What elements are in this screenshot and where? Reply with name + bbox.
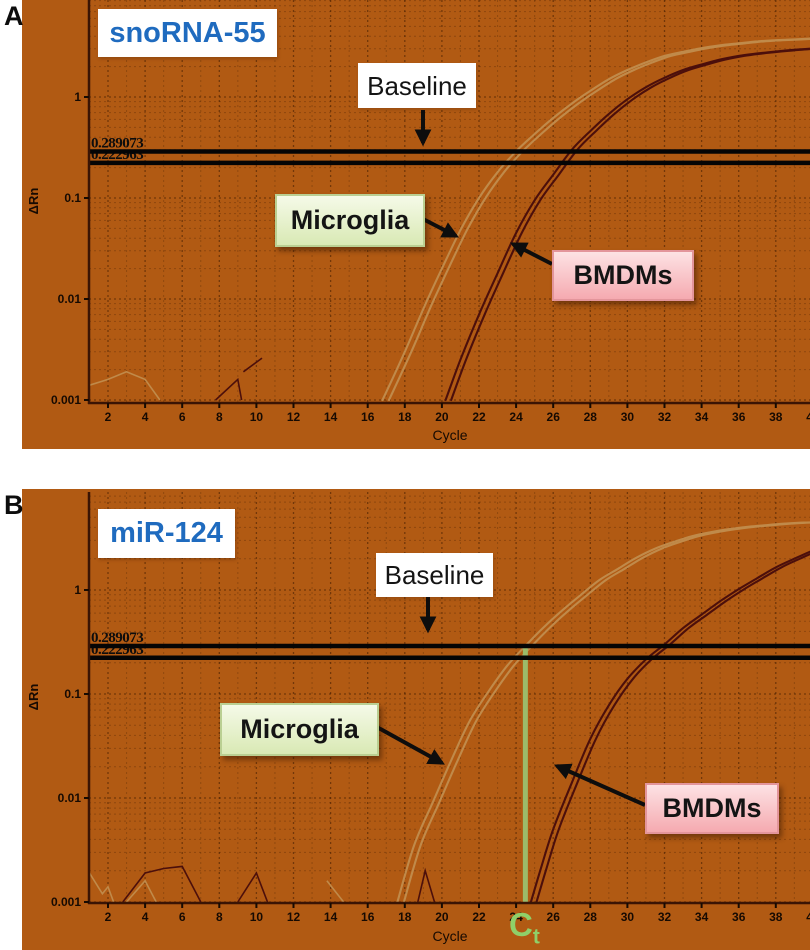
ct-threshold-cycle-label: Ct [509, 906, 540, 944]
svg-text:0.001: 0.001 [51, 393, 81, 407]
svg-text:16: 16 [361, 910, 375, 924]
svg-text:8: 8 [216, 910, 223, 924]
ct-label-sub: t [533, 926, 540, 949]
bmdms-label-b: BMDMs [645, 783, 779, 834]
bmdms-label-a: BMDMs [552, 250, 694, 301]
svg-text:1: 1 [74, 583, 81, 597]
svg-text:0.1: 0.1 [64, 191, 81, 205]
svg-text:24: 24 [509, 410, 523, 424]
svg-text:0.1: 0.1 [64, 687, 81, 701]
svg-text:34: 34 [695, 410, 709, 424]
svg-text:6: 6 [179, 910, 186, 924]
svg-text:38: 38 [769, 410, 783, 424]
svg-text:4: 4 [142, 410, 149, 424]
svg-text:26: 26 [547, 910, 561, 924]
svg-text:18: 18 [398, 910, 412, 924]
svg-text:16: 16 [361, 410, 375, 424]
svg-text:20: 20 [435, 910, 449, 924]
svg-text:6: 6 [179, 410, 186, 424]
svg-text:12: 12 [287, 910, 301, 924]
svg-text:28: 28 [584, 910, 598, 924]
svg-text:0.01: 0.01 [58, 292, 82, 306]
svg-text:30: 30 [621, 410, 635, 424]
microglia-label-a: Microglia [275, 194, 425, 247]
svg-text:8: 8 [216, 410, 223, 424]
svg-text:2: 2 [105, 910, 112, 924]
svg-text:ΔRn: ΔRn [26, 684, 41, 711]
svg-text:36: 36 [732, 410, 746, 424]
panel-a-amplification-plot: 0.2890730.222963246810121416182022242628… [22, 0, 810, 449]
svg-text:0.001: 0.001 [51, 895, 81, 909]
baseline-label-a: Baseline [358, 63, 476, 108]
panel-letter-b: B [4, 490, 22, 521]
panel-b-title: miR-124 [98, 509, 235, 558]
svg-text:36: 36 [732, 910, 746, 924]
svg-text:14: 14 [324, 410, 338, 424]
svg-text:18: 18 [398, 410, 412, 424]
svg-text:30: 30 [621, 910, 635, 924]
svg-text:2: 2 [105, 410, 112, 424]
svg-text:32: 32 [658, 410, 672, 424]
svg-text:32: 32 [658, 910, 672, 924]
svg-text:1: 1 [74, 90, 81, 104]
svg-text:4: 4 [142, 910, 149, 924]
svg-text:20: 20 [435, 410, 449, 424]
microglia-label-b: Microglia [220, 703, 379, 756]
svg-text:10: 10 [250, 410, 264, 424]
svg-text:12: 12 [287, 410, 301, 424]
svg-text:28: 28 [584, 410, 598, 424]
panel-a-title: snoRNA-55 [98, 9, 277, 57]
svg-text:Cycle: Cycle [432, 928, 467, 944]
svg-text:26: 26 [547, 410, 561, 424]
baseline-label-b: Baseline [376, 553, 493, 597]
svg-text:22: 22 [472, 410, 486, 424]
svg-text:10: 10 [250, 910, 264, 924]
panel-letter-a: A [4, 1, 22, 32]
svg-text:40: 40 [806, 910, 810, 924]
svg-text:22: 22 [472, 910, 486, 924]
svg-text:ΔRn: ΔRn [26, 188, 41, 215]
svg-text:40: 40 [806, 410, 810, 424]
svg-text:38: 38 [769, 910, 783, 924]
svg-text:Cycle: Cycle [432, 427, 467, 443]
panel-b-amplification-plot: 0.2890730.222963246810121416182022242628… [22, 489, 810, 950]
svg-text:34: 34 [695, 910, 709, 924]
svg-text:0.01: 0.01 [58, 791, 82, 805]
svg-text:14: 14 [324, 910, 338, 924]
ct-label-base: C [509, 906, 533, 943]
